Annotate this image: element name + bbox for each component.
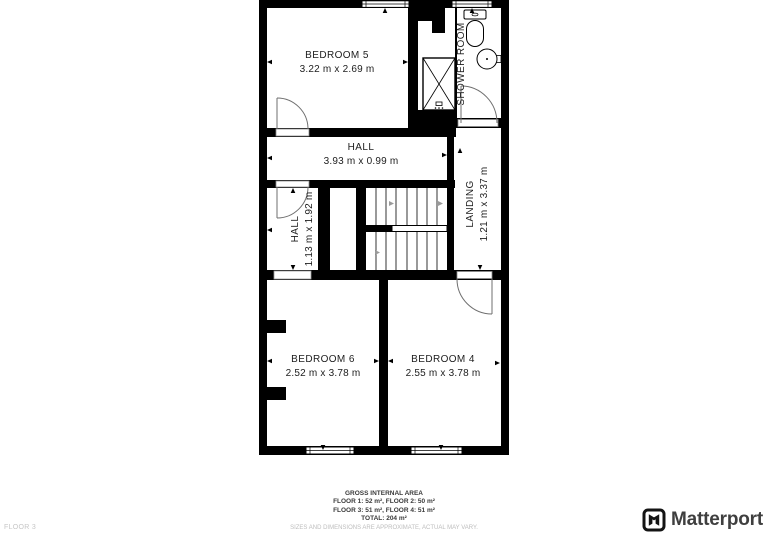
room-dimensions: 2.55 m x 3.78 m	[406, 367, 481, 381]
stair-rail	[392, 226, 447, 232]
wall-segment	[447, 118, 454, 278]
room-label-shower-room: SHOWER ROOM	[455, 22, 469, 105]
room-label-hall: HALL 3.93 m x 0.99 m	[324, 141, 399, 169]
gross-area-total: TOTAL: 204 m²	[290, 515, 478, 523]
room-dimensions: 3.93 m x 0.99 m	[324, 155, 399, 169]
wall-segment	[418, 0, 445, 21]
door-panel	[458, 120, 498, 127]
room-dimensions: 1.21 m x 3.37 m	[478, 167, 492, 242]
matterport-logo: Matterport	[642, 508, 763, 532]
wall-segment	[501, 0, 509, 455]
room-dimensions: 3.22 m x 2.69 m	[300, 63, 375, 77]
floorplan-page: { "plan": { "rooms": [ {"name": "BEDROOM…	[0, 0, 768, 537]
room-name: BEDROOM 6	[286, 353, 361, 367]
chimney-breast	[267, 320, 286, 333]
door-swing-icon	[277, 98, 308, 129]
gross-area-title: GROSS INTERNAL AREA	[290, 490, 478, 498]
room-label-landing: LANDING 1.21 m x 3.37 m	[464, 167, 492, 242]
door-panel	[276, 129, 309, 136]
window-icon	[306, 447, 354, 454]
sink-icon	[477, 49, 501, 69]
wall-segment	[379, 280, 388, 446]
window-icon	[411, 447, 462, 454]
size-disclaimer: SIZES AND DIMENSIONS ARE APPROXIMATE, AC…	[290, 524, 478, 532]
door-panel	[276, 181, 309, 187]
matterport-logo-icon	[642, 508, 666, 532]
gross-area-line-2: FLOOR 3: 51 m², FLOOR 4: 51 m²	[290, 507, 478, 515]
stair-rail	[366, 225, 392, 232]
gross-area-line-1: FLOOR 1: 52 m², FLOOR 2: 50 m²	[290, 498, 478, 506]
room-name: SHOWER ROOM	[455, 22, 469, 105]
room-label-bedroom-4: BEDROOM 4 2.55 m x 3.78 m	[406, 353, 481, 381]
matterport-wordmark: Matterport	[671, 509, 763, 531]
door-swing-icon	[457, 279, 492, 314]
open-doorway	[274, 271, 311, 279]
room-name: LANDING	[464, 167, 478, 242]
window-icon	[452, 1, 492, 8]
room-dimensions: 1.13 m x 1.92 m	[303, 192, 317, 267]
room-name: BEDROOM 5	[300, 49, 375, 63]
door-panel	[457, 272, 492, 279]
room-name: BEDROOM 4	[406, 353, 481, 367]
room-label-bedroom-6: BEDROOM 6 2.52 m x 3.78 m	[286, 353, 361, 381]
wall-segment	[356, 188, 366, 280]
room-name: HALL	[289, 192, 303, 267]
window-icon	[362, 1, 409, 8]
wall-segment	[259, 446, 509, 455]
floor-number-label: FLOOR 3	[4, 524, 36, 531]
room-label-bedroom-5: BEDROOM 5 3.22 m x 2.69 m	[300, 49, 375, 77]
gross-internal-area-block: GROSS INTERNAL AREA FLOOR 1: 52 m², FLOO…	[290, 490, 478, 532]
shower-tray-icon	[423, 58, 455, 110]
wall-segment	[318, 188, 330, 280]
wall-segment	[432, 21, 445, 33]
room-dimensions: 2.52 m x 3.78 m	[286, 367, 361, 381]
room-label-hall-2: HALL 1.13 m x 1.92 m	[289, 192, 317, 267]
wall-segment	[259, 0, 267, 455]
chimney-breast	[267, 387, 286, 400]
staircase	[366, 188, 447, 270]
room-name: HALL	[324, 141, 399, 155]
